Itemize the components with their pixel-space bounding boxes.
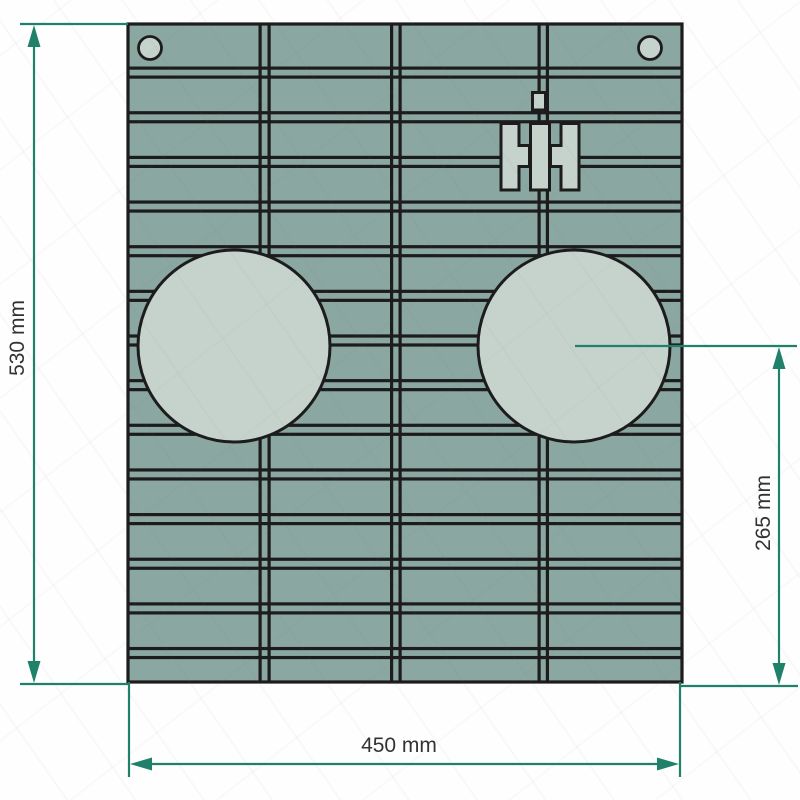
rib-line xyxy=(128,602,682,605)
rib-line xyxy=(128,200,682,203)
rib-line xyxy=(128,245,682,248)
rib-line xyxy=(128,522,682,525)
rib-line xyxy=(128,647,682,650)
emblem-dot-square xyxy=(533,93,546,111)
mounting-hole-right xyxy=(639,37,662,60)
rib-line xyxy=(128,76,682,79)
arrowhead-right-icon xyxy=(657,758,679,771)
dimension-label-530: 530 mm xyxy=(6,300,29,376)
rib-line xyxy=(128,111,682,114)
rib-line xyxy=(128,209,682,212)
dimension-label-450: 450 mm xyxy=(361,734,437,757)
rib-line xyxy=(128,513,682,516)
arrowhead-up-icon xyxy=(28,25,41,47)
arrowhead-down-icon xyxy=(773,663,786,685)
emblem-center-bar xyxy=(531,124,550,191)
rib-line xyxy=(128,656,682,659)
rib-line xyxy=(128,477,682,480)
rib-line xyxy=(128,120,682,123)
rib-line xyxy=(128,567,682,570)
dimension-450: 450 mm xyxy=(129,682,680,777)
rib-line xyxy=(128,611,682,614)
circular-opening-left xyxy=(138,250,330,442)
rib-line xyxy=(128,558,682,561)
arrowhead-up-icon xyxy=(773,347,786,369)
mounting-hole-left xyxy=(139,37,162,60)
dimension-label-265: 265 mm xyxy=(752,475,775,551)
arrowhead-down-icon xyxy=(28,661,41,683)
rib-line xyxy=(128,468,682,471)
seam-line xyxy=(390,24,393,682)
panel-technical-drawing: 530 mm 450 mm 265 mm xyxy=(0,0,800,800)
dimension-530: 530 mm xyxy=(6,24,130,684)
arrowhead-left-icon xyxy=(130,758,152,771)
seam-line xyxy=(399,24,402,682)
rib-line xyxy=(128,156,682,159)
rib-line xyxy=(128,67,682,70)
rib-line xyxy=(128,165,682,168)
